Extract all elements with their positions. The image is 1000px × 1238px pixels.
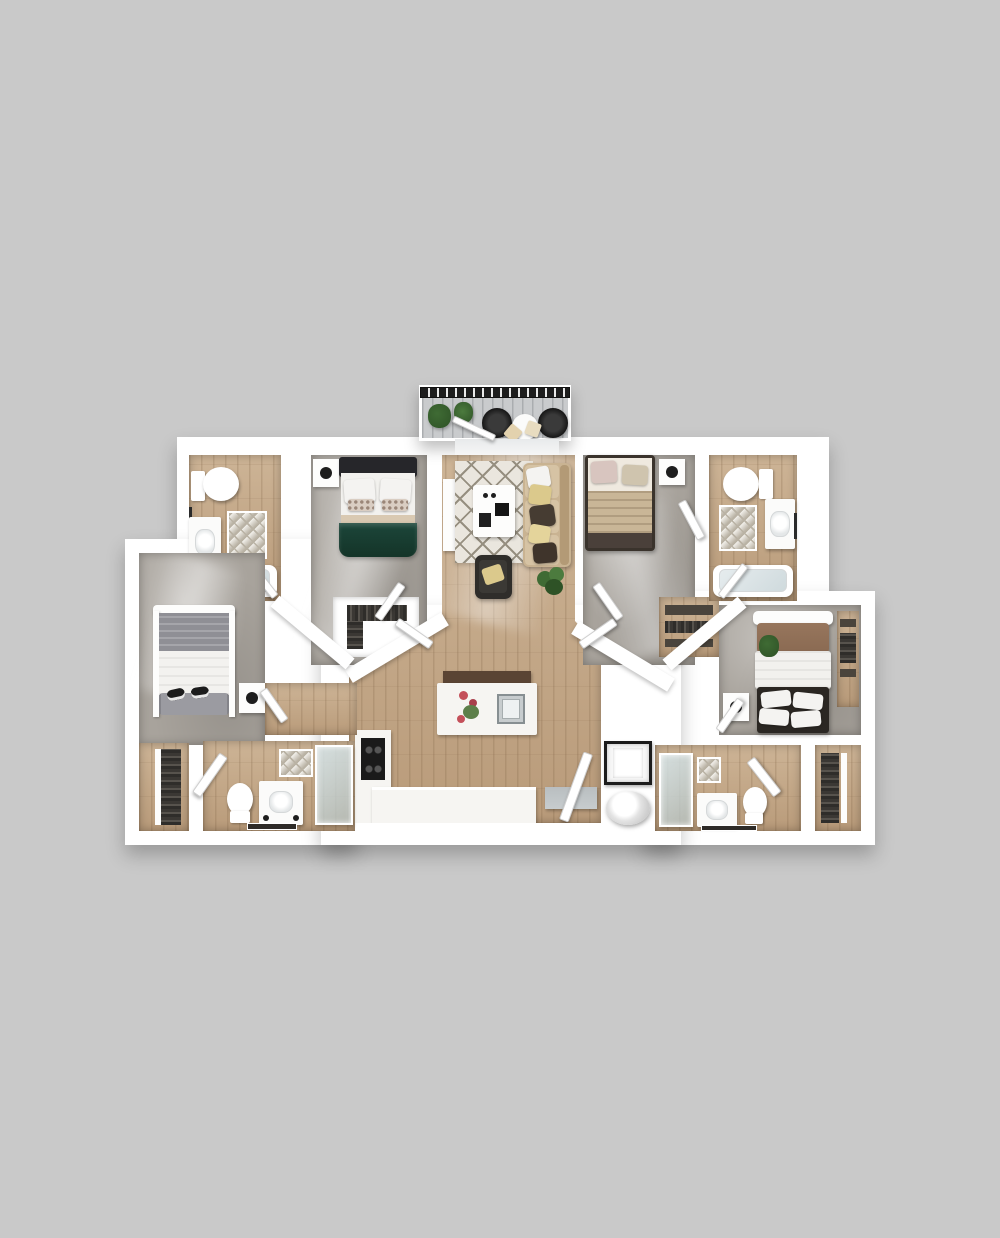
bed-white — [153, 605, 235, 717]
tile-wall — [697, 757, 721, 783]
bed-rail — [229, 611, 235, 717]
pillow — [792, 691, 824, 710]
bathroom-bottom-left — [203, 741, 355, 831]
balcony-threshold — [455, 439, 559, 455]
bed-brown-white — [753, 611, 833, 733]
closet-strip — [837, 611, 859, 707]
blanket-striped — [588, 491, 652, 533]
pillow-beige — [621, 464, 648, 485]
plant-icon — [535, 567, 569, 597]
toilet-icon — [203, 467, 239, 501]
coffee-table — [473, 485, 515, 537]
flower-icon — [457, 715, 465, 723]
bottom-right-suite — [655, 739, 865, 839]
toilet-tank-icon — [230, 811, 250, 823]
nightstand — [239, 683, 265, 713]
laptop-icon — [495, 503, 509, 516]
bathroom-top-right — [709, 455, 797, 601]
vanity-sink — [259, 781, 303, 825]
tile-wall — [279, 749, 313, 777]
balcony — [419, 385, 571, 441]
accent-pillow — [348, 499, 374, 511]
sofa-back — [560, 465, 569, 565]
closet-bottom-left — [139, 743, 189, 831]
bed-tan — [585, 455, 655, 551]
shower-glass — [315, 745, 353, 825]
kitchen-island — [437, 683, 537, 735]
hanging-clothes-icon — [161, 749, 181, 825]
appliance-box — [604, 741, 652, 785]
sofa — [523, 463, 571, 567]
towel-bar-icon — [794, 513, 797, 539]
flower-icon — [459, 691, 468, 700]
balcony-plant-icon — [428, 404, 451, 428]
bath-mat — [719, 505, 757, 551]
utility-closet — [601, 735, 657, 827]
floor-plan — [125, 383, 875, 849]
bathroom-door — [192, 752, 228, 797]
toilet-tank-icon — [759, 469, 773, 499]
pillow-pink — [590, 460, 617, 483]
bedroom-right-wing — [719, 591, 875, 745]
bathroom-bottom-right — [655, 745, 801, 831]
accent-pillow — [382, 499, 408, 511]
vanity-sink — [765, 499, 795, 549]
bottom-left-suite — [139, 739, 357, 835]
book-icon — [479, 513, 491, 527]
shelf-edge — [841, 753, 847, 823]
nightstand — [659, 459, 685, 485]
pillow — [790, 710, 821, 729]
nightstand — [313, 459, 339, 487]
balcony-chair-right — [538, 408, 568, 438]
pillow — [758, 708, 789, 727]
shelf — [665, 605, 713, 615]
balcony-railing — [420, 387, 570, 398]
water-heater — [606, 791, 650, 825]
plant-icon — [759, 635, 779, 657]
flower-leaves-icon — [463, 705, 479, 719]
shower-glass — [659, 753, 693, 827]
closet-bottom-right — [815, 745, 861, 831]
blanket-gray — [159, 613, 229, 653]
bath-mat-dark — [701, 825, 757, 831]
footboard — [588, 533, 652, 548]
bath-mat-dark — [247, 823, 297, 830]
kitchen-counter-bottom — [372, 787, 536, 827]
pillow-dark — [532, 542, 558, 564]
hanging-clothes-icon — [821, 753, 839, 823]
island-sink — [497, 694, 525, 724]
pillow — [760, 689, 792, 708]
cooktop-icon — [361, 738, 385, 780]
shelf-edge — [155, 749, 161, 825]
toilet-tank-icon — [745, 813, 763, 824]
vanity-sink — [697, 793, 737, 827]
armchair — [475, 555, 512, 599]
toilet-icon — [723, 467, 759, 501]
